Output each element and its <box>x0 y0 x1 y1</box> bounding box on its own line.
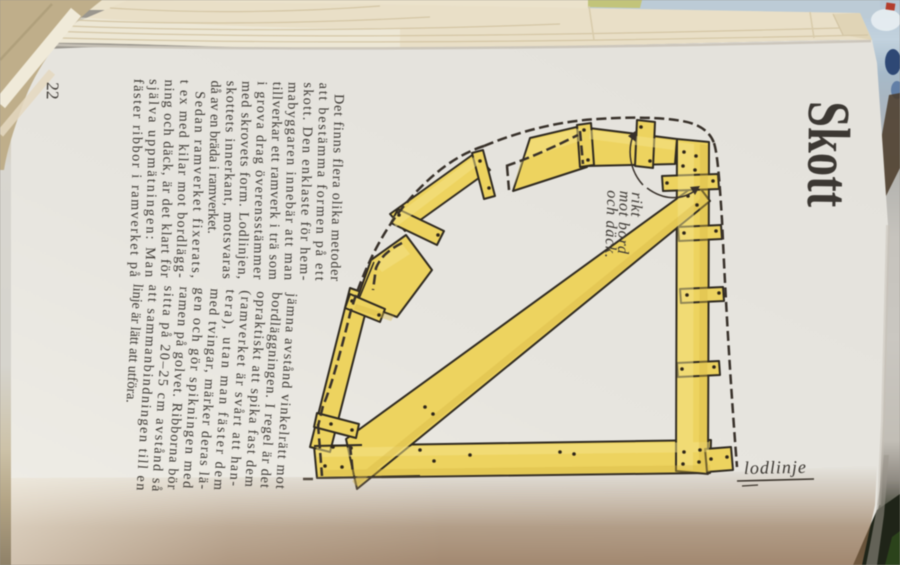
svg-text:22: 22 <box>43 82 63 100</box>
svg-text:och däck.: och däck. <box>601 190 620 259</box>
svg-text:lodlinje: lodlinje <box>744 457 807 478</box>
svg-text:Skott: Skott <box>795 101 862 208</box>
